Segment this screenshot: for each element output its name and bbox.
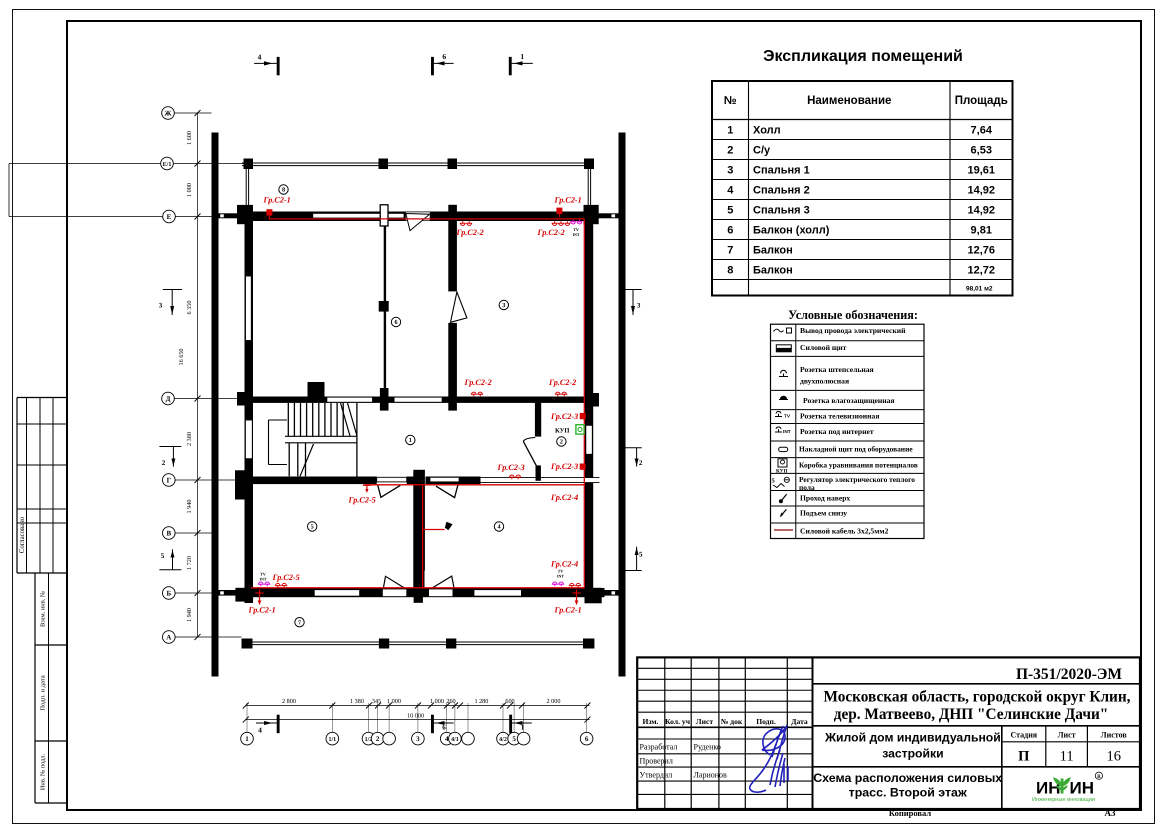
svg-text:ИН: ИН (1070, 778, 1095, 797)
svg-text:Разработал: Разработал (640, 742, 678, 751)
svg-text:дер. Матвеево, ДНП "Селинские: дер. Матвеево, ДНП "Селинские Дачи" (834, 706, 1109, 723)
svg-text:Руденко: Руденко (694, 742, 721, 751)
svg-text:Ларионов: Ларионов (694, 770, 728, 779)
svg-text:Схема расположения силовых: Схема расположения силовых (813, 771, 1002, 785)
svg-text:П: П (1018, 749, 1029, 765)
svg-text:Проверил: Проверил (640, 756, 673, 765)
svg-text:Кол. уч: Кол. уч (665, 717, 691, 726)
svg-text:№ док: № док (721, 717, 743, 726)
svg-text:застройки: застройки (882, 746, 943, 760)
svg-text:Лист: Лист (1058, 731, 1076, 740)
svg-text:11: 11 (1060, 749, 1074, 765)
svg-text:Изм.: Изм. (643, 717, 659, 726)
svg-text:Жилой дом индивидуальной: Жилой дом индивидуальной (824, 730, 1001, 744)
svg-text:Лист: Лист (696, 717, 713, 726)
svg-text:Утвердил: Утвердил (640, 770, 673, 779)
svg-text:Инженерные инновации: Инженерные инновации (1032, 797, 1095, 803)
svg-text:Дата: Дата (791, 717, 808, 726)
svg-text:Стадия: Стадия (1010, 731, 1037, 740)
svg-text:Листов: Листов (1101, 731, 1128, 740)
svg-text:трасс. Второй этаж: трасс. Второй этаж (849, 785, 967, 799)
svg-text:П-351/2020-ЭМ: П-351/2020-ЭМ (1016, 666, 1122, 683)
svg-text:Подп.: Подп. (756, 717, 776, 726)
svg-text:R: R (1097, 775, 1101, 780)
svg-text:Московская область, городской: Московская область, городской округ Клин… (824, 689, 1131, 706)
svg-text:16: 16 (1106, 749, 1121, 765)
